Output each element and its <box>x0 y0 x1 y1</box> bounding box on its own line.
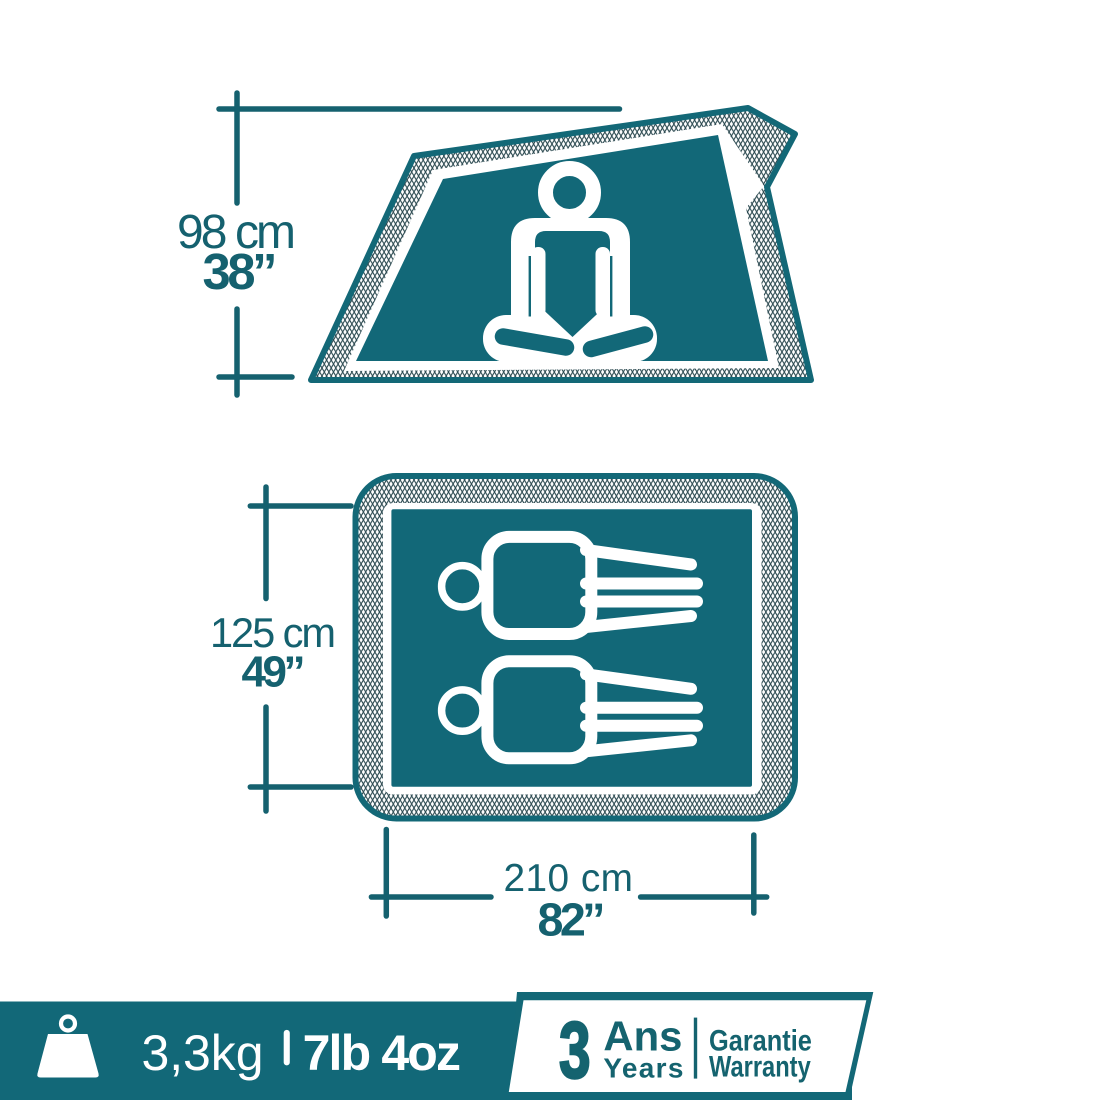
svg-text:38”: 38” <box>203 243 278 300</box>
svg-text:82”: 82” <box>538 893 606 945</box>
svg-text:Years: Years <box>603 1052 683 1083</box>
svg-text:49”: 49” <box>242 648 306 697</box>
svg-text:7lb 4oz: 7lb 4oz <box>303 1025 461 1081</box>
svg-text:Warranty: Warranty <box>709 1050 811 1083</box>
svg-text:3: 3 <box>559 1005 591 1095</box>
svg-text:3,3kg: 3,3kg <box>142 1025 264 1081</box>
